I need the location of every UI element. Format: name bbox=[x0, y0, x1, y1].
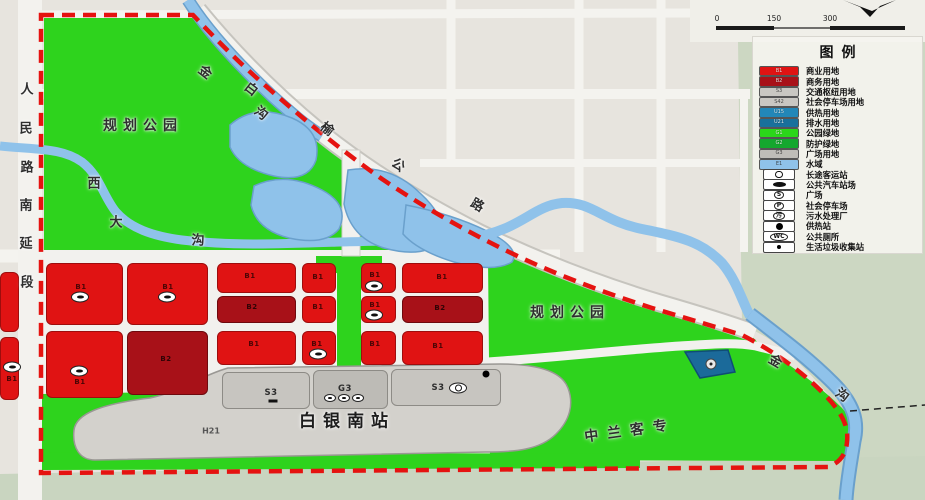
public-toilet-icon: WC bbox=[763, 231, 795, 242]
river-top-char: 白 bbox=[241, 77, 263, 100]
legend-code: U15 bbox=[774, 110, 784, 115]
park-east-label: 规划公园 bbox=[530, 302, 610, 322]
renmin-road-char: 路 bbox=[20, 157, 33, 176]
legend-swatch: S42 bbox=[759, 97, 799, 108]
scalebar-tick: 300 bbox=[823, 14, 837, 23]
highway-char: 榆 bbox=[317, 116, 339, 139]
legend-glyph: P bbox=[774, 202, 784, 210]
legend-swatch: B1 bbox=[759, 66, 799, 77]
h21-label: H21 bbox=[202, 427, 220, 436]
river-east-char: 沟 bbox=[832, 382, 854, 405]
legend-swatch: E1 bbox=[759, 159, 799, 170]
scalebar-tick: 0 bbox=[715, 14, 720, 23]
legend-code: G1 bbox=[775, 131, 782, 136]
legend-code: B1 bbox=[776, 69, 783, 74]
legend-code: E1 bbox=[776, 162, 782, 167]
legend-code: G2 bbox=[775, 141, 782, 146]
public-parking-icon: P bbox=[763, 200, 795, 211]
legend-glyph: 污 bbox=[773, 212, 785, 220]
legend-swatch: S3 bbox=[759, 87, 799, 98]
legend-label: 生活垃圾收集站 bbox=[806, 241, 864, 253]
legend-swatch: U21 bbox=[759, 118, 799, 129]
legend-code: S42 bbox=[774, 100, 784, 105]
renmin-road-char: 段 bbox=[20, 272, 33, 291]
railway-label: 中兰客专 bbox=[583, 414, 677, 447]
legend-code: B2 bbox=[776, 79, 783, 84]
scalebar-tick: 150 bbox=[767, 14, 781, 23]
heating-station-icon bbox=[763, 221, 795, 232]
stream-char: 大 bbox=[109, 212, 122, 231]
public-bus-station-icon bbox=[763, 179, 795, 190]
legend-swatch: B2 bbox=[759, 76, 799, 87]
highway-char: 公 bbox=[388, 152, 410, 175]
legend-glyph: S bbox=[774, 191, 784, 199]
legend-item: 污污水处理厂 bbox=[759, 211, 916, 221]
station-label: 白银南站 bbox=[299, 407, 395, 432]
legend-item: G3广场用地 bbox=[759, 149, 916, 159]
legend-panel: 图例 B1商业用地B2商务用地S3交通枢纽用地S42社会停车场用地U15供热用地… bbox=[752, 36, 923, 254]
legend-item: 生活垃圾收集站 bbox=[759, 242, 916, 252]
legend-title: 图例 bbox=[767, 42, 916, 62]
legend-swatch: G2 bbox=[759, 138, 799, 149]
renmin-road-char: 南 bbox=[19, 195, 32, 214]
legend-glyph: WC bbox=[770, 233, 787, 241]
renmin-road-char: 人 bbox=[20, 79, 33, 98]
planning-map[interactable]: B1B1B1B1B2B1B1B1B1B1B1B1B1B2B1B1B2S3G3S3… bbox=[0, 0, 925, 500]
legend-item: 公共汽车站场 bbox=[759, 180, 916, 190]
stream-char: 西 bbox=[87, 173, 100, 192]
park-west-label: 规划公园 bbox=[103, 115, 183, 135]
legend-swatch: G1 bbox=[759, 128, 799, 139]
legend-items: B1商业用地B2商务用地S3交通枢纽用地S42社会停车场用地U15供热用地U21… bbox=[759, 66, 916, 252]
renmin-road-char: 民 bbox=[19, 118, 32, 137]
legend-swatch: U15 bbox=[759, 107, 799, 118]
highway-char: 路 bbox=[468, 193, 489, 216]
coach-station-icon bbox=[763, 169, 795, 180]
river-east-char: 金 bbox=[766, 349, 787, 372]
stream-char: 沟 bbox=[191, 230, 204, 249]
waste-collection-icon bbox=[763, 242, 795, 253]
legend-code: S3 bbox=[776, 89, 782, 94]
river-top-char: 金 bbox=[195, 60, 217, 83]
legend-code: U21 bbox=[774, 120, 784, 125]
river-top-char: 沟 bbox=[251, 101, 273, 124]
sewage-plant-icon: 污 bbox=[763, 210, 795, 221]
legend-swatch: G3 bbox=[759, 149, 799, 160]
legend-code: G3 bbox=[775, 151, 782, 156]
square-icon: S bbox=[763, 190, 795, 201]
renmin-road-char: 延 bbox=[19, 233, 32, 252]
